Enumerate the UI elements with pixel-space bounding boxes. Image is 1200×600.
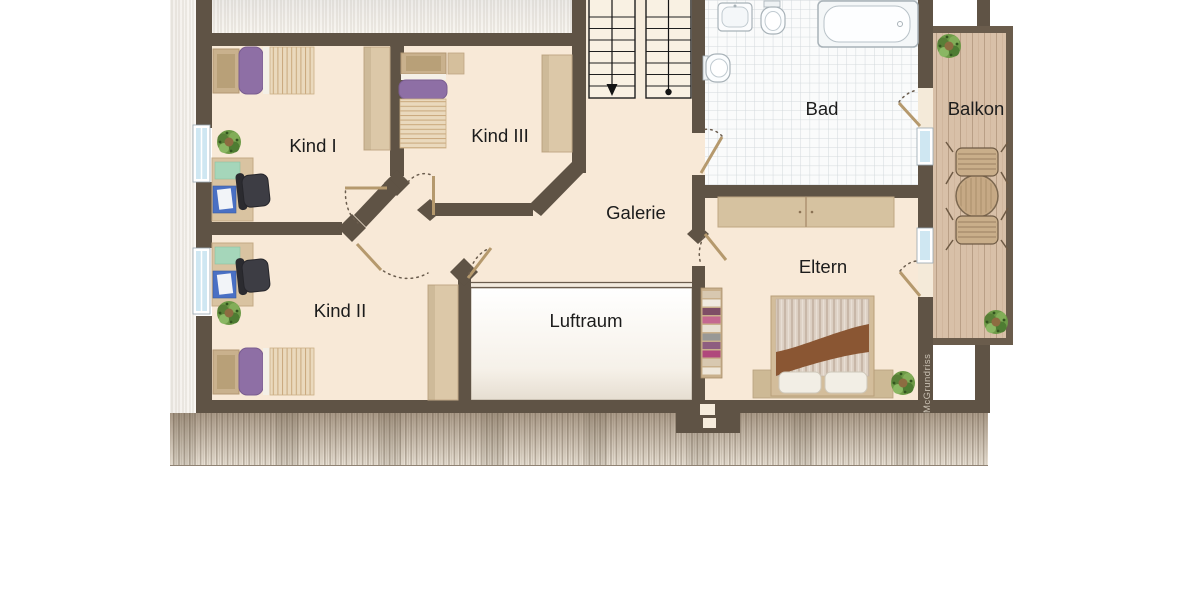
double-bed-icon-eltern bbox=[753, 296, 893, 398]
room-label-kind2: Kind II bbox=[314, 300, 366, 321]
room-label-bad: Bad bbox=[806, 98, 839, 119]
bed-icon-kind1 bbox=[213, 47, 314, 94]
closet-icon-eltern bbox=[718, 197, 894, 227]
room-label-eltern: Eltern bbox=[799, 256, 847, 277]
plant-icon-balkon-top bbox=[937, 34, 961, 58]
room-label-balkon: Balkon bbox=[948, 98, 1005, 119]
door-threshold-eltern-balkon bbox=[918, 262, 933, 297]
toilet-side-icon bbox=[703, 54, 730, 82]
window-bad bbox=[917, 128, 933, 165]
plant-icon-balkon-bottom bbox=[984, 310, 1008, 334]
room-label-kind3: Kind III bbox=[471, 125, 529, 146]
window-kind2 bbox=[193, 248, 210, 314]
room-label-kind1: Kind I bbox=[289, 135, 336, 156]
plant-icon-kind2 bbox=[217, 301, 241, 325]
bathtub-icon bbox=[818, 1, 918, 47]
window-kind1 bbox=[193, 125, 210, 182]
room-label-luftraum: Luftraum bbox=[549, 310, 622, 331]
stairs-icon bbox=[586, 0, 692, 98]
roof-area-left bbox=[170, 0, 196, 413]
nightstand-icon bbox=[448, 53, 464, 74]
room-label-galerie: Galerie bbox=[606, 202, 666, 223]
watermark-text: McGrundriss bbox=[922, 354, 933, 413]
roof-area-bottom bbox=[170, 413, 988, 466]
sink-icon bbox=[718, 3, 752, 31]
plant-icon-kind1 bbox=[217, 130, 241, 154]
roof-area-top bbox=[212, 0, 572, 33]
bed-icon-kind2 bbox=[213, 348, 314, 395]
floor-plan-drawing: Kind I Kind III Kind II Galerie Luftraum… bbox=[0, 0, 1200, 600]
floor-plan: Kind I Kind III Kind II Galerie Luftraum… bbox=[0, 0, 1200, 600]
window-eltern bbox=[917, 228, 933, 263]
patio-table-icon bbox=[956, 175, 998, 217]
luftraum-void bbox=[466, 283, 692, 401]
door-threshold-bad-balkon bbox=[918, 88, 933, 128]
plant-icon-eltern bbox=[891, 371, 915, 395]
stairs-start-dot bbox=[665, 89, 671, 95]
shelf-icon-eltern bbox=[701, 288, 722, 378]
